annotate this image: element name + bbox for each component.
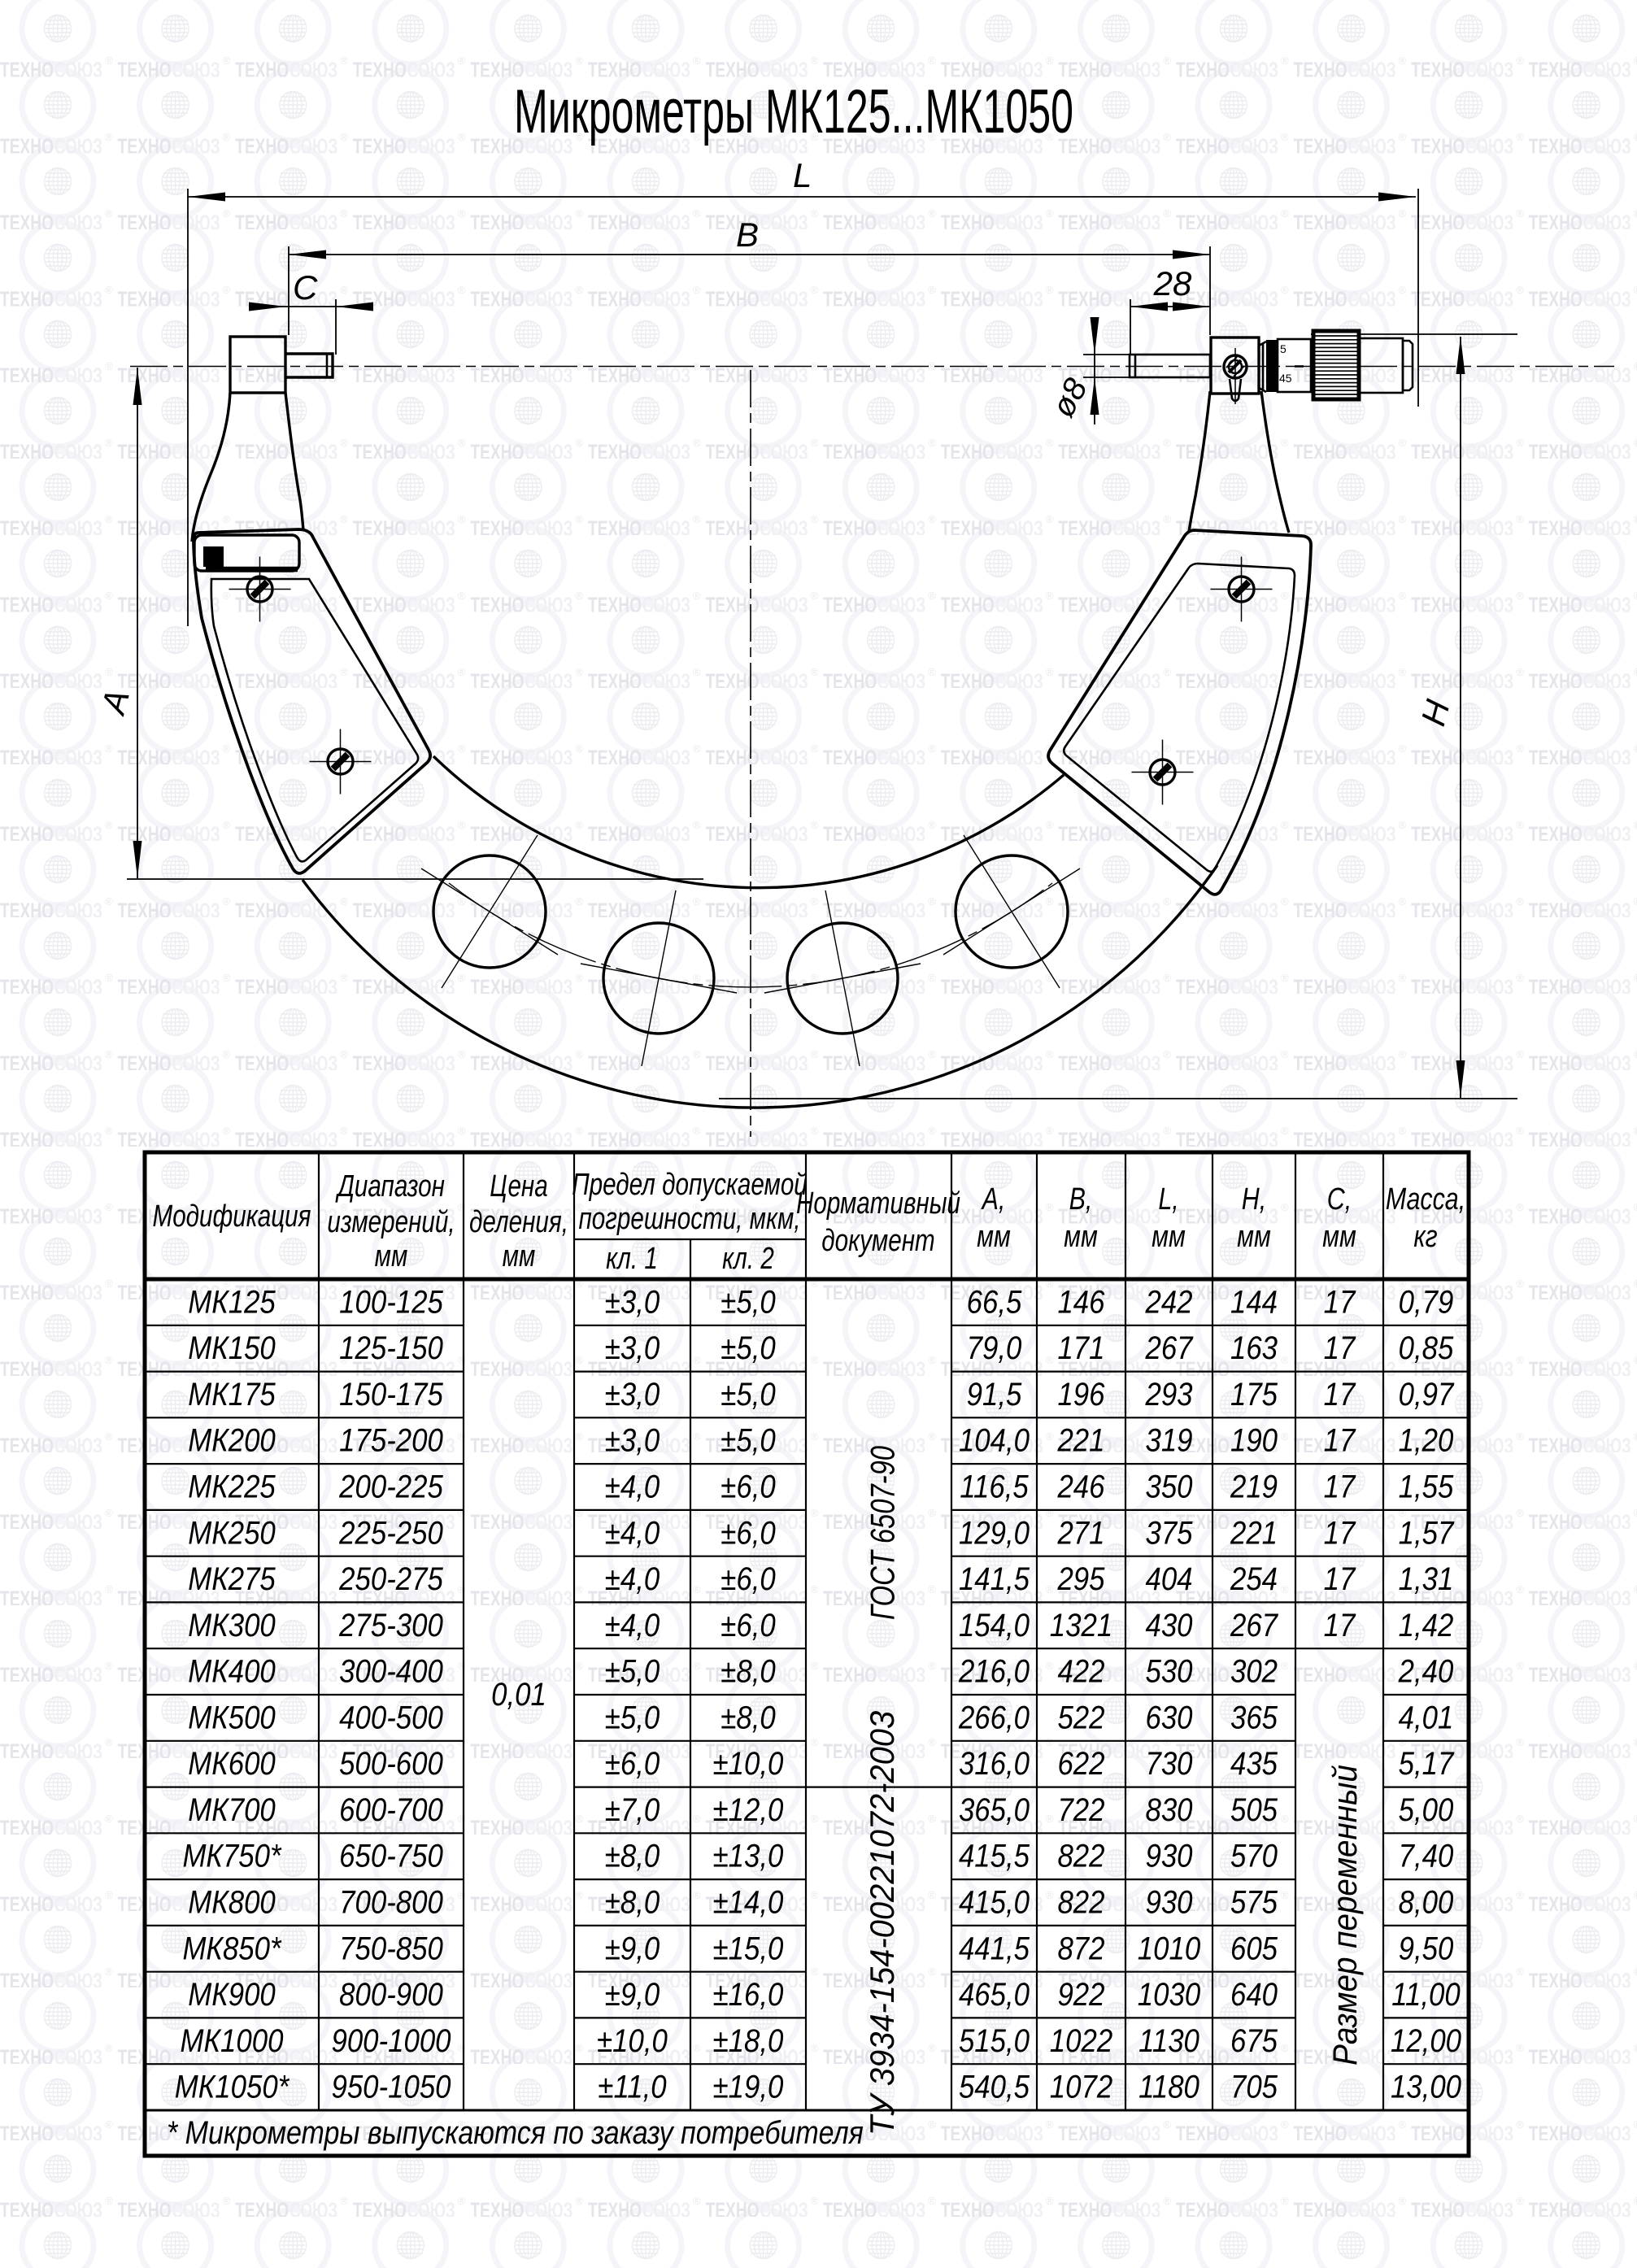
svg-text:Модификация: Модификация	[153, 1199, 311, 1234]
svg-text:±4,0: ±4,0	[605, 1468, 660, 1504]
svg-text:мм: мм	[1064, 1220, 1098, 1254]
svg-text:271: 271	[1057, 1514, 1105, 1551]
svg-text:±5,0: ±5,0	[721, 1283, 776, 1320]
svg-text:МК500: МК500	[188, 1699, 276, 1735]
svg-text:±8,0: ±8,0	[721, 1652, 776, 1689]
svg-text:375: 375	[1145, 1514, 1192, 1551]
svg-text:79,0: 79,0	[967, 1330, 1022, 1366]
svg-text:415,0: 415,0	[959, 1883, 1030, 1920]
svg-text:267: 267	[1230, 1607, 1278, 1643]
svg-text:630: 630	[1145, 1699, 1192, 1735]
svg-text:141,5: 141,5	[959, 1561, 1030, 1597]
svg-text:7,40: 7,40	[1399, 1837, 1454, 1874]
svg-text:мм: мм	[1152, 1220, 1186, 1254]
svg-text:622: 622	[1057, 1745, 1104, 1782]
svg-text:±6,0: ±6,0	[721, 1607, 776, 1643]
svg-text:1,55: 1,55	[1399, 1468, 1454, 1504]
svg-text:1,20: 1,20	[1399, 1421, 1454, 1458]
svg-text:221: 221	[1057, 1421, 1105, 1458]
svg-text:1022: 1022	[1050, 2022, 1113, 2059]
svg-text:1030: 1030	[1138, 1976, 1201, 2013]
svg-text:C: C	[293, 268, 318, 307]
svg-text:267: 267	[1145, 1330, 1194, 1366]
svg-text:500-600: 500-600	[339, 1745, 443, 1782]
svg-text:мм: мм	[1237, 1220, 1271, 1254]
svg-text:640: 640	[1230, 1976, 1278, 2013]
svg-text:163: 163	[1230, 1330, 1278, 1366]
svg-text:±6,0: ±6,0	[721, 1561, 776, 1597]
svg-text:400-500: 400-500	[339, 1699, 443, 1735]
svg-text:216,0: 216,0	[958, 1652, 1030, 1689]
svg-text:365: 365	[1230, 1699, 1278, 1735]
svg-text:17: 17	[1324, 1330, 1356, 1366]
svg-text:722: 722	[1057, 1791, 1104, 1828]
svg-text:404: 404	[1145, 1561, 1192, 1597]
svg-text:Н,: Н,	[1242, 1182, 1266, 1217]
svg-text:254: 254	[1230, 1561, 1278, 1597]
svg-text:465,0: 465,0	[959, 1976, 1030, 2013]
svg-text:319: 319	[1145, 1421, 1192, 1458]
svg-text:±5,0: ±5,0	[605, 1699, 660, 1735]
svg-text:190: 190	[1230, 1421, 1278, 1458]
svg-text:200-225: 200-225	[338, 1468, 443, 1504]
svg-text:175-200: 175-200	[339, 1421, 443, 1458]
svg-text:МК175: МК175	[188, 1376, 276, 1413]
svg-text:17: 17	[1324, 1514, 1356, 1551]
svg-text:±3,0: ±3,0	[605, 1421, 660, 1458]
svg-text:17: 17	[1324, 1376, 1356, 1413]
svg-text:104,0: 104,0	[959, 1421, 1030, 1458]
svg-text:МК225: МК225	[188, 1468, 276, 1504]
svg-text:Размер переменный: Размер переменный	[1325, 1765, 1364, 2066]
svg-text:±4,0: ±4,0	[605, 1514, 660, 1551]
svg-text:650-750: 650-750	[339, 1837, 443, 1874]
svg-text:±5,0: ±5,0	[721, 1421, 776, 1458]
svg-text:505: 505	[1230, 1791, 1278, 1828]
svg-text:9,50: 9,50	[1399, 1930, 1454, 1966]
svg-text:295: 295	[1057, 1561, 1105, 1597]
svg-text:316,0: 316,0	[959, 1745, 1030, 1782]
svg-text:700-800: 700-800	[339, 1883, 443, 1920]
svg-text:100-125: 100-125	[339, 1283, 443, 1320]
svg-text:930: 930	[1145, 1883, 1192, 1920]
svg-text:МК150: МК150	[188, 1330, 276, 1366]
svg-text:±3,0: ±3,0	[605, 1330, 660, 1366]
svg-text:17: 17	[1324, 1607, 1356, 1643]
svg-text:872: 872	[1057, 1930, 1104, 1966]
svg-text:91,5: 91,5	[967, 1376, 1022, 1413]
svg-text:730: 730	[1145, 1745, 1192, 1782]
svg-text:435: 435	[1230, 1745, 1278, 1782]
svg-text:540,5: 540,5	[959, 2068, 1030, 2105]
svg-text:мм: мм	[977, 1220, 1011, 1254]
svg-text:275-300: 275-300	[338, 1607, 443, 1643]
svg-text:17: 17	[1324, 1561, 1356, 1597]
svg-text:±3,0: ±3,0	[605, 1376, 660, 1413]
svg-text:144: 144	[1230, 1283, 1278, 1320]
svg-text:146: 146	[1057, 1283, 1104, 1320]
svg-text:154,0: 154,0	[959, 1607, 1030, 1643]
svg-text:441,5: 441,5	[959, 1930, 1030, 1966]
svg-text:±5,0: ±5,0	[721, 1376, 776, 1413]
svg-text:800-900: 800-900	[339, 1976, 443, 2013]
svg-text:1321: 1321	[1050, 1607, 1112, 1643]
svg-text:125-150: 125-150	[339, 1330, 443, 1366]
svg-text:±14,0: ±14,0	[713, 1883, 784, 1920]
svg-text:430: 430	[1145, 1607, 1192, 1643]
svg-text:822: 822	[1057, 1883, 1104, 1920]
svg-text:L: L	[793, 156, 812, 194]
svg-text:1,57: 1,57	[1399, 1514, 1455, 1551]
svg-text:422: 422	[1057, 1652, 1104, 1689]
svg-text:±7,0: ±7,0	[605, 1791, 660, 1828]
svg-text:±15,0: ±15,0	[713, 1930, 784, 1966]
svg-text:1180: 1180	[1138, 2068, 1199, 2105]
svg-text:225-250: 225-250	[338, 1514, 443, 1551]
svg-text:66,5: 66,5	[967, 1283, 1022, 1320]
svg-text:±13,0: ±13,0	[713, 1837, 784, 1874]
svg-text:±6,0: ±6,0	[605, 1745, 660, 1782]
svg-text:Микрометры МК125...МК1050: Микрометры МК125...МК1050	[514, 77, 1073, 146]
svg-text:250-275: 250-275	[338, 1561, 443, 1597]
svg-text:B: B	[736, 215, 759, 254]
svg-text:* Микрометры выпускаются по за: * Микрометры выпускаются по заказу потре…	[167, 2113, 864, 2150]
svg-text:мм: мм	[1322, 1220, 1356, 1254]
svg-text:±11,0: ±11,0	[598, 2068, 666, 2105]
svg-text:±9,0: ±9,0	[605, 1976, 660, 2013]
svg-text:930: 930	[1145, 1837, 1192, 1874]
svg-text:±6,0: ±6,0	[721, 1514, 776, 1551]
svg-text:196: 196	[1057, 1376, 1104, 1413]
svg-text:МК125: МК125	[188, 1283, 276, 1320]
svg-text:±9,0: ±9,0	[605, 1930, 660, 1966]
svg-text:922: 922	[1057, 1976, 1104, 2013]
svg-text:С,: С,	[1327, 1182, 1352, 1217]
svg-text:Диапазон: Диапазон	[335, 1169, 446, 1204]
svg-text:±12,0: ±12,0	[713, 1791, 784, 1828]
svg-text:Цена: Цена	[490, 1169, 547, 1204]
svg-text:±16,0: ±16,0	[713, 1976, 784, 2013]
svg-text:МК300: МК300	[188, 1607, 276, 1643]
svg-text:L,: L,	[1158, 1182, 1178, 1217]
svg-text:±8,0: ±8,0	[605, 1837, 660, 1874]
svg-text:±5,0: ±5,0	[721, 1330, 776, 1366]
svg-text:246: 246	[1057, 1468, 1105, 1504]
svg-text:±8,0: ±8,0	[721, 1699, 776, 1735]
svg-text:МК600: МК600	[188, 1745, 276, 1782]
svg-text:11,00: 11,00	[1391, 1976, 1461, 2013]
svg-text:МК275: МК275	[188, 1561, 276, 1597]
svg-text:МК900: МК900	[188, 1976, 276, 2013]
svg-text:575: 575	[1230, 1883, 1278, 1920]
svg-text:28: 28	[1153, 264, 1192, 303]
svg-text:кг: кг	[1413, 1220, 1437, 1254]
svg-text:1072: 1072	[1050, 2068, 1113, 2105]
svg-text:±4,0: ±4,0	[605, 1561, 660, 1597]
svg-text:Предел допускаемой: Предел допускаемой	[572, 1168, 808, 1202]
svg-text:0,01: 0,01	[491, 1676, 546, 1713]
svg-text:515,0: 515,0	[959, 2022, 1030, 2059]
svg-text:кл. 2: кл. 2	[722, 1242, 774, 1276]
svg-text:МК250: МК250	[188, 1514, 276, 1551]
svg-text:±5,0: ±5,0	[605, 1652, 660, 1689]
svg-text:МК200: МК200	[188, 1421, 276, 1458]
svg-text:530: 530	[1145, 1652, 1192, 1689]
svg-text:129,0: 129,0	[959, 1514, 1030, 1551]
svg-text:МК750*: МК750*	[182, 1837, 281, 1874]
svg-text:±19,0: ±19,0	[713, 2068, 784, 2105]
svg-text:±18,0: ±18,0	[713, 2022, 784, 2059]
svg-text:А,: А,	[981, 1182, 1005, 1217]
svg-text:±10,0: ±10,0	[713, 1745, 784, 1782]
svg-text:17: 17	[1324, 1468, 1356, 1504]
svg-text:Масса,: Масса,	[1386, 1182, 1465, 1217]
svg-text:5,17: 5,17	[1399, 1745, 1455, 1782]
svg-text:17: 17	[1324, 1421, 1356, 1458]
svg-text:221: 221	[1230, 1514, 1278, 1551]
svg-text:0,85: 0,85	[1399, 1330, 1454, 1366]
svg-text:кл. 1: кл. 1	[606, 1242, 658, 1276]
svg-text:МК700: МК700	[188, 1791, 276, 1828]
svg-text:570: 570	[1230, 1837, 1278, 1874]
svg-text:±8,0: ±8,0	[605, 1883, 660, 1920]
svg-text:5,00: 5,00	[1399, 1791, 1454, 1828]
svg-text:350: 350	[1145, 1468, 1192, 1504]
svg-text:4,01: 4,01	[1399, 1699, 1454, 1735]
svg-text:116,5: 116,5	[960, 1468, 1029, 1504]
svg-text:ТУ 3934-154-00221072-2003: ТУ 3934-154-00221072-2003	[863, 1711, 901, 2136]
svg-text:900-1000: 900-1000	[331, 2022, 451, 2059]
svg-text:17: 17	[1324, 1283, 1356, 1320]
svg-text:150-175: 150-175	[339, 1376, 443, 1413]
svg-text:175: 175	[1230, 1376, 1278, 1413]
svg-text:1010: 1010	[1138, 1930, 1201, 1966]
svg-text:5: 5	[1280, 342, 1287, 355]
svg-text:950-1050: 950-1050	[331, 2068, 451, 2105]
svg-text:0,79: 0,79	[1399, 1283, 1454, 1320]
svg-text:266,0: 266,0	[958, 1699, 1030, 1735]
svg-text:365,0: 365,0	[959, 1791, 1030, 1828]
svg-text:2,40: 2,40	[1398, 1652, 1454, 1689]
svg-text:±3,0: ±3,0	[605, 1283, 660, 1320]
svg-text:±10,0: ±10,0	[597, 2022, 668, 2059]
svg-text:45: 45	[1279, 372, 1292, 385]
svg-text:измерений,: измерений,	[327, 1205, 455, 1239]
svg-text:300-400: 300-400	[339, 1652, 443, 1689]
svg-text:МК1050*: МК1050*	[175, 2068, 290, 2105]
svg-text:МК850*: МК850*	[182, 1930, 281, 1966]
svg-text:±6,0: ±6,0	[721, 1468, 776, 1504]
svg-text:МК400: МК400	[188, 1652, 276, 1689]
svg-text:705: 705	[1230, 2068, 1278, 2105]
svg-text:13,00: 13,00	[1391, 2068, 1461, 2105]
svg-text:822: 822	[1057, 1837, 1104, 1874]
svg-text:415,5: 415,5	[959, 1837, 1030, 1874]
svg-text:8,00: 8,00	[1399, 1883, 1454, 1920]
svg-text:171: 171	[1057, 1330, 1104, 1366]
svg-text:1,42: 1,42	[1399, 1607, 1454, 1643]
svg-text:219: 219	[1230, 1468, 1278, 1504]
svg-text:Нормативный: Нормативный	[796, 1186, 960, 1221]
svg-text:522: 522	[1057, 1699, 1104, 1735]
svg-text:293: 293	[1145, 1376, 1193, 1413]
svg-text:675: 675	[1230, 2022, 1278, 2059]
svg-text:В,: В,	[1069, 1182, 1093, 1217]
svg-text:деления,: деления,	[469, 1205, 568, 1239]
svg-text:±4,0: ±4,0	[605, 1607, 660, 1643]
svg-text:МК1000: МК1000	[181, 2022, 284, 2059]
svg-text:1,31: 1,31	[1399, 1561, 1454, 1597]
svg-text:750-850: 750-850	[339, 1930, 443, 1966]
svg-text:605: 605	[1230, 1930, 1278, 1966]
svg-text:242: 242	[1145, 1283, 1193, 1320]
svg-text:погрешности, мкм,: погрешности, мкм,	[578, 1202, 800, 1236]
svg-text:302: 302	[1230, 1652, 1278, 1689]
svg-text:мм: мм	[375, 1239, 408, 1273]
svg-text:ГОСТ 6507-90: ГОСТ 6507-90	[863, 1446, 901, 1620]
svg-text:600-700: 600-700	[339, 1791, 443, 1828]
svg-text:документ: документ	[821, 1224, 934, 1258]
svg-text:12,00: 12,00	[1391, 2022, 1461, 2059]
svg-text:1130: 1130	[1138, 2022, 1199, 2059]
svg-text:830: 830	[1145, 1791, 1192, 1828]
svg-text:0,97: 0,97	[1399, 1376, 1455, 1413]
svg-text:МК800: МК800	[188, 1883, 276, 1920]
svg-text:мм: мм	[503, 1239, 536, 1273]
